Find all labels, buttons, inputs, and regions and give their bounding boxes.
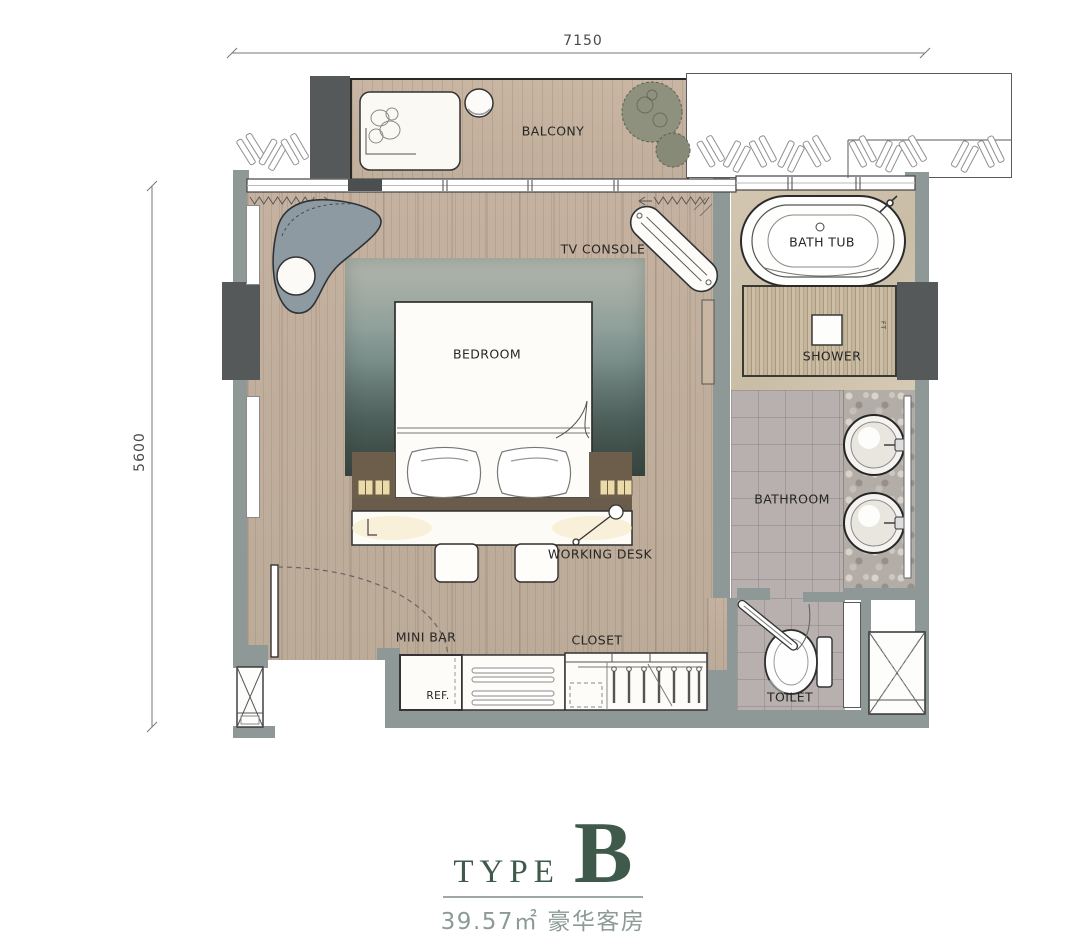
right-wall bbox=[915, 176, 929, 728]
bedroom-rug bbox=[345, 258, 645, 476]
balcony-threshold bbox=[310, 178, 350, 192]
right-column bbox=[897, 282, 938, 380]
dimension-left: 5600 bbox=[132, 432, 148, 472]
shaft-left bbox=[237, 667, 263, 727]
label-closet: CLOSET bbox=[572, 633, 623, 648]
floor-plan-type-b: 7150 5600 BALCONY TV CONSOLE BEDROOM BAT… bbox=[0, 0, 1080, 945]
label-shower: SHOWER bbox=[803, 349, 862, 364]
title-underline bbox=[443, 896, 643, 898]
label-bedroom: BEDROOM bbox=[453, 347, 521, 362]
toilet-west-wall bbox=[727, 598, 737, 712]
bathroom-toilet-stub-east bbox=[803, 592, 845, 602]
bathroom-toilet-stub-west bbox=[737, 588, 770, 600]
label-ref: REF. bbox=[426, 690, 449, 702]
dimension-top: 7150 bbox=[563, 33, 603, 49]
label-mini-bar: MINI BAR bbox=[396, 630, 457, 645]
balcony-deck-floor bbox=[350, 78, 689, 180]
ref-corner-stub bbox=[377, 648, 400, 660]
label-toilet: TOILET bbox=[767, 690, 813, 705]
balcony-column bbox=[310, 76, 350, 178]
left-window-frame-lower bbox=[246, 396, 260, 518]
label-balcony: BALCONY bbox=[522, 124, 584, 139]
label-working-desk: WORKING DESK bbox=[548, 547, 652, 562]
title-block: TYPE B bbox=[453, 820, 632, 891]
vanity-counter bbox=[843, 390, 916, 598]
left-column bbox=[222, 282, 260, 380]
counter-south-wall bbox=[843, 588, 915, 600]
adjacent-balcony-area bbox=[686, 73, 1012, 178]
right-wall-top-corner bbox=[905, 172, 929, 182]
title-area-caption: 39.57㎡ 豪华客房 bbox=[441, 902, 646, 936]
toilet-east-wall bbox=[861, 598, 871, 712]
doorway-south-wall bbox=[707, 670, 727, 710]
label-bath-tub: BATH TUB bbox=[789, 235, 855, 250]
balcony-door-leaf bbox=[348, 179, 382, 191]
entry-west-stub bbox=[233, 645, 268, 668]
left-wall bbox=[233, 176, 247, 660]
label-tv-console: TV CONSOLE bbox=[561, 242, 646, 257]
label-bathroom: BATHROOM bbox=[754, 492, 830, 507]
below-shaft-wall bbox=[233, 726, 275, 738]
bathroom-doorway-floor bbox=[707, 598, 727, 670]
left-wall-corner bbox=[233, 170, 249, 180]
toilet-pocket-door bbox=[843, 602, 861, 708]
bottom-wall bbox=[385, 710, 929, 728]
left-window-frame-upper bbox=[246, 205, 260, 285]
closet-unit bbox=[565, 653, 707, 710]
bedroom-bath-divider bbox=[713, 178, 730, 598]
title-type-letter: B bbox=[574, 820, 633, 889]
window-band-bath bbox=[736, 176, 915, 190]
minibar-counter bbox=[462, 655, 565, 710]
title-type-word: TYPE bbox=[453, 854, 560, 891]
label-shower-note: FT bbox=[879, 321, 886, 330]
